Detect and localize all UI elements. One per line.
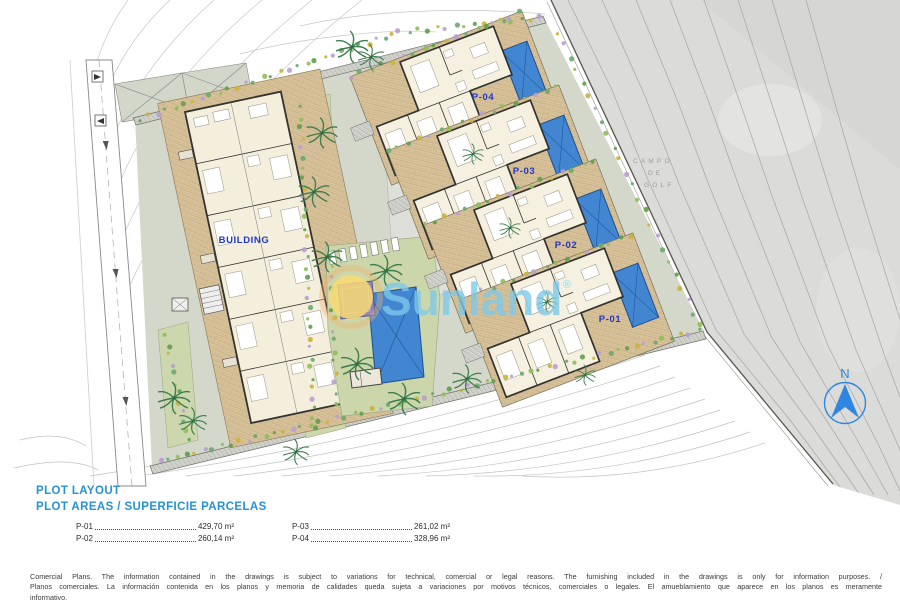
shrub-dot bbox=[685, 332, 690, 337]
shrub-dot bbox=[307, 255, 310, 258]
shrub-dot bbox=[167, 344, 172, 349]
shrub-dot bbox=[333, 350, 338, 355]
shrub-dot bbox=[582, 82, 586, 86]
shrub-dot bbox=[171, 364, 175, 368]
shrub-dot bbox=[503, 375, 508, 380]
shrub-dot bbox=[188, 438, 191, 441]
shrub-dot bbox=[691, 313, 695, 317]
plot-area-row-p04: P-04 328,96 m² bbox=[292, 534, 450, 543]
plot-name: P-04 bbox=[292, 534, 309, 543]
shrub-dot bbox=[455, 22, 460, 27]
shrub-dot bbox=[386, 148, 391, 153]
shrub-dot bbox=[298, 425, 301, 428]
shrub-dot bbox=[302, 247, 307, 252]
shrub-dot bbox=[460, 389, 463, 392]
shrub-dot bbox=[310, 384, 314, 388]
shrub-dot bbox=[536, 369, 539, 372]
shrub-dot bbox=[308, 325, 312, 329]
shrub-dot bbox=[309, 397, 314, 402]
shrub-dot bbox=[298, 145, 302, 149]
shrub-dot bbox=[297, 124, 302, 129]
shrub-dot bbox=[349, 76, 353, 80]
shrub-dot bbox=[598, 243, 603, 248]
shrub-dot bbox=[635, 198, 639, 202]
shrub-dot bbox=[302, 214, 307, 219]
shrub-dot bbox=[273, 431, 276, 434]
shrub-dot bbox=[138, 119, 141, 122]
shrub-dot bbox=[442, 213, 447, 218]
shrub-dot bbox=[301, 166, 304, 169]
shrub-dot bbox=[508, 192, 513, 197]
watermark-text: Sunland bbox=[381, 273, 562, 325]
shrub-dot bbox=[245, 81, 248, 84]
shrub-dot bbox=[163, 107, 166, 110]
plot-area-value: 429,70 m² bbox=[198, 522, 234, 531]
legend-title-plot-layout: PLOT LAYOUT bbox=[36, 483, 456, 499]
shrub-dot bbox=[520, 372, 524, 376]
shrub-dot bbox=[305, 234, 309, 238]
shrub-dot bbox=[479, 111, 484, 116]
unit-furniture bbox=[280, 310, 294, 322]
shrub-dot bbox=[236, 437, 241, 442]
shrub-dot bbox=[167, 352, 170, 355]
golf-label-line2: DE bbox=[648, 170, 663, 177]
shrub-dot bbox=[311, 378, 314, 381]
shrub-dot bbox=[431, 392, 434, 395]
contour-line bbox=[20, 436, 86, 446]
palm-tree-icon bbox=[283, 439, 309, 465]
shrub-dot bbox=[425, 28, 430, 33]
shrub-dot bbox=[176, 455, 180, 459]
disclaimer-line-es2: informativo. bbox=[30, 593, 882, 600]
shrub-dot bbox=[375, 37, 378, 40]
shrub-dot bbox=[432, 44, 435, 47]
shrub-dot bbox=[656, 233, 660, 237]
shrub-dot bbox=[499, 18, 502, 21]
shrub-dot bbox=[476, 202, 481, 207]
shrub-dot bbox=[221, 443, 224, 446]
shrub-dot bbox=[688, 298, 691, 301]
shrub-dot bbox=[470, 119, 474, 123]
shrub-dot bbox=[326, 420, 329, 423]
shrub-dot bbox=[667, 260, 670, 263]
site-plan-page: CAMPO DE GOLF bbox=[0, 0, 900, 600]
shrub-dot bbox=[395, 145, 398, 148]
shrub-dot bbox=[484, 24, 489, 29]
shrub-dot bbox=[442, 392, 446, 396]
shrub-dot bbox=[679, 331, 683, 335]
shrub-dot bbox=[473, 22, 477, 26]
shrub-dot bbox=[697, 322, 702, 327]
shrub-dot bbox=[206, 92, 211, 97]
shrub-dot bbox=[331, 265, 334, 268]
shrub-dot bbox=[675, 272, 679, 276]
shrub-dot bbox=[629, 234, 634, 239]
shrub-dot bbox=[409, 31, 412, 34]
shrub-dot bbox=[302, 138, 305, 141]
shrub-dot bbox=[677, 286, 682, 291]
shrub-dot bbox=[562, 41, 566, 45]
disclaimer-line-en: Comercial Plans. The information contain… bbox=[30, 572, 882, 582]
shrub-dot bbox=[248, 440, 251, 443]
shrub-dot bbox=[335, 371, 339, 375]
shrub-dot bbox=[229, 444, 233, 448]
shrub-dot bbox=[315, 419, 320, 424]
unit-furniture bbox=[269, 258, 283, 270]
shrub-dot bbox=[644, 207, 649, 212]
shrub-dot bbox=[171, 369, 176, 374]
shrub-dot bbox=[631, 182, 634, 185]
shrub-dot bbox=[262, 74, 267, 79]
shrub-dot bbox=[523, 97, 526, 100]
shrub-dot bbox=[659, 336, 664, 341]
shrub-dot bbox=[305, 296, 309, 300]
shrub-dot bbox=[308, 345, 311, 348]
shrub-dot bbox=[427, 135, 430, 138]
shrub-dot bbox=[565, 360, 568, 363]
plot-area-row-p03: P-03 261,02 m² bbox=[292, 522, 450, 531]
shrub-dot bbox=[313, 425, 318, 430]
shrub-dot bbox=[548, 364, 552, 368]
shrub-dot bbox=[166, 458, 169, 461]
shrub-dot bbox=[299, 118, 303, 122]
shrub-dot bbox=[305, 275, 310, 280]
dotted-leader bbox=[95, 541, 196, 542]
shrub-dot bbox=[464, 32, 467, 35]
villa-label-p01: P-01 bbox=[599, 314, 622, 325]
shrub-dot bbox=[585, 250, 589, 254]
shrub-dot bbox=[410, 52, 414, 56]
shrub-dot bbox=[181, 101, 186, 106]
shrub-dot bbox=[300, 175, 304, 179]
plot-name: P-02 bbox=[76, 534, 93, 543]
unit-furniture bbox=[258, 206, 272, 218]
shrub-dot bbox=[553, 261, 557, 265]
shrub-dot bbox=[528, 18, 532, 22]
shrub-dot bbox=[307, 287, 310, 290]
plot-area-value: 260,14 m² bbox=[198, 534, 234, 543]
plot-area-row-p02: P-02 260,14 m² bbox=[76, 534, 234, 543]
shrub-dot bbox=[335, 415, 339, 419]
shrub-dot bbox=[310, 416, 314, 420]
shrub-dot bbox=[530, 185, 534, 189]
shrub-dot bbox=[670, 337, 673, 340]
shrub-dot bbox=[159, 458, 164, 463]
shrub-dot bbox=[204, 447, 208, 451]
shrub-dot bbox=[308, 337, 313, 342]
dotted-leader bbox=[311, 541, 412, 542]
shrub-dot bbox=[616, 348, 619, 351]
villa-label-p04: P-04 bbox=[472, 92, 495, 103]
shrub-dot bbox=[446, 126, 451, 131]
shrub-dot bbox=[390, 60, 395, 65]
shrub-dot bbox=[307, 364, 312, 369]
shrub-dot bbox=[185, 451, 190, 456]
shrub-dot bbox=[354, 411, 357, 414]
access-road bbox=[70, 60, 146, 486]
shrub-dot bbox=[616, 156, 620, 160]
shrub-dot bbox=[304, 207, 308, 211]
shrub-dot bbox=[491, 379, 495, 383]
shrub-dot bbox=[395, 28, 400, 33]
shrub-dot bbox=[174, 106, 178, 110]
shrub-dot bbox=[433, 220, 437, 224]
shrub-dot bbox=[389, 32, 393, 36]
shrub-dot bbox=[600, 120, 604, 124]
contour-line bbox=[14, 462, 98, 470]
shrub-dot bbox=[486, 200, 489, 203]
shrub-dot bbox=[642, 342, 645, 345]
shrub-dot bbox=[332, 337, 336, 341]
shrub-dot bbox=[493, 111, 496, 114]
watermark-registered-icon: ® bbox=[563, 279, 571, 291]
villa-label-p02: P-02 bbox=[555, 240, 577, 251]
shrub-dot bbox=[436, 25, 439, 28]
shrub-dot bbox=[415, 26, 419, 30]
plot-area-value: 261,02 m² bbox=[414, 522, 450, 531]
shrub-dot bbox=[335, 392, 338, 395]
unit-furniture bbox=[291, 362, 305, 374]
shrub-dot bbox=[287, 68, 292, 73]
shrub-dot bbox=[660, 247, 665, 252]
plot-area-row-p01: P-01 429,70 m² bbox=[76, 522, 234, 531]
shrub-dot bbox=[331, 359, 334, 362]
shrub-dot bbox=[546, 265, 549, 268]
shrub-dot bbox=[477, 26, 481, 30]
shrub-dot bbox=[513, 101, 518, 106]
shrub-dot bbox=[192, 452, 195, 455]
shrub-dot bbox=[550, 177, 553, 180]
shrub-dot bbox=[331, 379, 336, 384]
shrub-dot bbox=[279, 69, 283, 73]
shrub-dot bbox=[528, 368, 533, 373]
shrub-dot bbox=[572, 361, 576, 365]
shrub-dot bbox=[219, 92, 222, 95]
shrub-dot bbox=[624, 172, 629, 177]
utility-box bbox=[172, 298, 188, 311]
dotted-leader bbox=[311, 529, 412, 530]
plot-area-value: 328,96 m² bbox=[414, 534, 450, 543]
shrub-dot bbox=[225, 86, 229, 90]
watermark-sun-icon bbox=[329, 275, 373, 319]
shrub-dot bbox=[545, 89, 550, 94]
shrub-dot bbox=[585, 93, 590, 98]
shrub-dot bbox=[304, 267, 308, 271]
shrub-dot bbox=[510, 374, 513, 377]
golf-label-line1: CAMPO bbox=[633, 158, 673, 165]
shrub-dot bbox=[619, 235, 623, 239]
shrub-dot bbox=[698, 328, 701, 331]
watermark: Sunland ® bbox=[322, 268, 571, 326]
shrub-dot bbox=[647, 223, 650, 226]
shrub-dot bbox=[423, 222, 426, 225]
plot-name: P-03 bbox=[292, 522, 309, 531]
shrub-dot bbox=[502, 19, 506, 23]
shrub-dot bbox=[569, 168, 574, 173]
shrub-dot bbox=[306, 61, 310, 65]
shrub-dot bbox=[486, 379, 489, 382]
villa-label-p03: P-03 bbox=[513, 166, 535, 177]
shrub-dot bbox=[625, 346, 629, 350]
shrub-dot bbox=[554, 84, 557, 87]
shrub-dot bbox=[447, 386, 452, 391]
shrub-dot bbox=[417, 135, 422, 140]
shrub-dot bbox=[311, 58, 316, 63]
shrub-dot bbox=[553, 364, 558, 369]
shrub-dot bbox=[191, 100, 194, 103]
shrub-dot bbox=[580, 354, 585, 359]
shrub-dot bbox=[516, 186, 519, 189]
shrub-dot bbox=[614, 147, 617, 150]
shrub-dot bbox=[264, 434, 269, 439]
shrub-dot bbox=[444, 39, 448, 43]
shrub-dot bbox=[654, 340, 658, 344]
shrub-dot bbox=[440, 127, 444, 131]
shrub-dot bbox=[386, 403, 390, 407]
shrub-dot bbox=[182, 409, 185, 412]
shrub-dot bbox=[281, 429, 285, 433]
shrub-dot bbox=[356, 69, 361, 74]
dotted-leader bbox=[95, 529, 196, 530]
shrub-dot bbox=[370, 406, 375, 411]
legend-title-plot-areas: PLOT AREAS / SUPERFICIE PARCELAS bbox=[36, 499, 456, 515]
shrub-dot bbox=[291, 427, 296, 432]
shrub-dot bbox=[597, 351, 601, 355]
shrub-dot bbox=[461, 120, 464, 123]
shrub-dot bbox=[573, 68, 576, 71]
shrub-dot bbox=[594, 107, 597, 110]
shrub-dot bbox=[313, 406, 316, 409]
shrub-dot bbox=[463, 207, 467, 211]
shrub-dot bbox=[454, 34, 459, 39]
shrub-dot bbox=[424, 45, 429, 50]
shrub-dot bbox=[507, 17, 511, 21]
shrub-dot bbox=[359, 412, 363, 416]
plot-name: P-01 bbox=[76, 522, 93, 531]
shrub-dot bbox=[334, 402, 338, 406]
unit-furniture bbox=[247, 155, 261, 167]
shrub-dot bbox=[331, 330, 334, 333]
shrub-dot bbox=[251, 81, 255, 85]
shrub-dot bbox=[500, 104, 504, 108]
shrub-dot bbox=[590, 160, 594, 164]
shrub-dot bbox=[537, 177, 542, 182]
legend: PLOT LAYOUT PLOT AREAS / SUPERFICIE PARC… bbox=[36, 483, 456, 543]
shrub-dot bbox=[157, 112, 162, 117]
shrub-dot bbox=[201, 97, 205, 101]
shrub-dot bbox=[565, 257, 570, 262]
shrub-dot bbox=[422, 395, 427, 400]
shrub-dot bbox=[146, 112, 150, 116]
shrub-dot bbox=[324, 55, 327, 58]
shrub-dot bbox=[609, 351, 614, 356]
shrub-dot bbox=[209, 447, 214, 452]
golf-label-line3: GOLF bbox=[644, 182, 675, 189]
shrub-dot bbox=[402, 54, 405, 57]
shrub-dot bbox=[635, 343, 640, 348]
shrub-dot bbox=[517, 9, 522, 14]
shrub-dot bbox=[592, 357, 595, 360]
shrub-dot bbox=[163, 333, 167, 337]
shrub-dot bbox=[300, 156, 305, 161]
shrub-dot bbox=[577, 253, 580, 256]
shrub-dot bbox=[456, 212, 459, 215]
disclaimer-line-es: Planos comerciales. La información conte… bbox=[30, 582, 882, 592]
shrub-dot bbox=[561, 169, 565, 173]
shrub-dot bbox=[584, 162, 587, 165]
shrub-dot bbox=[490, 21, 493, 24]
disclaimer: Comercial Plans. The information contain… bbox=[30, 572, 882, 600]
shrub-dot bbox=[331, 53, 335, 57]
shrub-dot bbox=[607, 243, 610, 246]
shrub-dot bbox=[341, 415, 346, 420]
shrub-dot bbox=[384, 36, 388, 40]
shrub-dot bbox=[299, 105, 302, 108]
shrub-dot bbox=[462, 25, 465, 28]
north-label: N bbox=[840, 366, 849, 381]
shrub-dot bbox=[537, 14, 542, 19]
shrub-dot bbox=[253, 434, 257, 438]
shrub-dot bbox=[234, 86, 239, 91]
shrub-dot bbox=[269, 75, 272, 78]
shrub-dot bbox=[295, 64, 298, 67]
shrub-dot bbox=[521, 17, 524, 20]
shrub-dot bbox=[556, 32, 559, 35]
shrub-dot bbox=[311, 358, 315, 362]
shrub-dot bbox=[407, 141, 411, 145]
shrub-dot bbox=[309, 424, 313, 428]
shrub-dot bbox=[533, 93, 537, 97]
shrub-dot bbox=[569, 56, 574, 61]
building-label: BUILDING bbox=[219, 235, 270, 246]
shrub-dot bbox=[603, 131, 608, 136]
shrub-dot bbox=[308, 305, 313, 310]
shrub-dot bbox=[306, 317, 309, 320]
shrub-dot bbox=[379, 407, 382, 410]
shrub-dot bbox=[303, 228, 306, 231]
shrub-dot bbox=[442, 27, 446, 31]
shrub-dot bbox=[496, 194, 500, 198]
